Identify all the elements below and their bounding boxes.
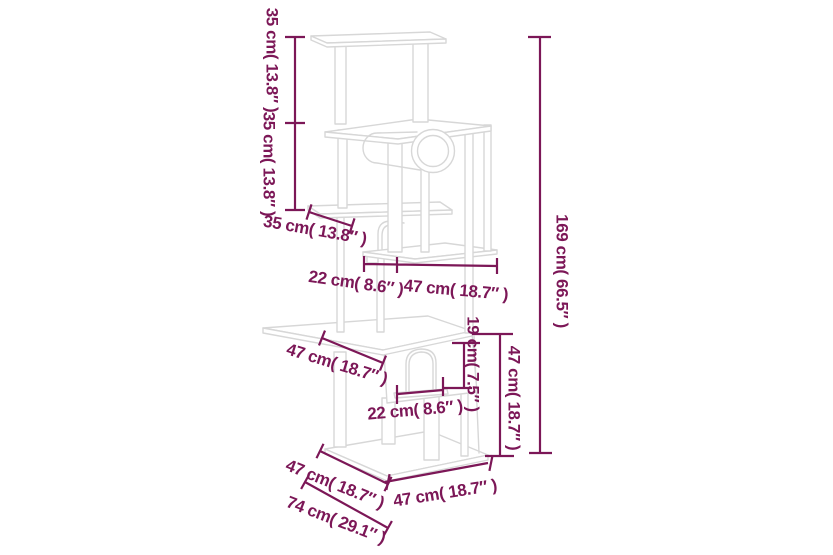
cat-tree-dimension-diagram: 35 cm( 13.8″ ) 35 cm( 13.8″ ) 169 cm( 66… — [0, 0, 833, 555]
dim-upper-sections: 35 cm( 13.8″ ) 35 cm( 13.8″ ) — [260, 8, 306, 217]
dim-middle-section-height-label: 35 cm( 13.8″ ) — [260, 112, 279, 217]
dim-house-section-height-label: 47 cm( 18.7″ ) — [505, 346, 524, 451]
dim-total-height: 169 cm( 66.5″ ) — [528, 37, 572, 453]
dim-upper-section-height-label: 35 cm( 13.8″ ) — [263, 8, 282, 113]
dim-base-front-width-label: 47 cm( 18.7″ ) — [392, 475, 498, 510]
diagram-canvas: 35 cm( 13.8″ ) 35 cm( 13.8″ ) 169 cm( 66… — [0, 0, 833, 555]
dim-shelf-width-label: 47 cm( 18.7″ ) — [403, 276, 509, 304]
dimension-line — [285, 37, 305, 210]
top-posts — [335, 38, 428, 124]
dim-total-height-label: 169 cm( 66.5″ ) — [553, 214, 572, 328]
dim-house-floor-width-label: 22 cm( 8.6″ ) — [367, 396, 464, 423]
dim-door-opening-height-label: 19 cm( 7.5″ ) — [464, 316, 483, 412]
small-platform — [308, 202, 452, 218]
dim-shelf-recess-label: 22 cm( 8.6″ ) — [307, 267, 404, 299]
dimension-line — [528, 37, 552, 453]
